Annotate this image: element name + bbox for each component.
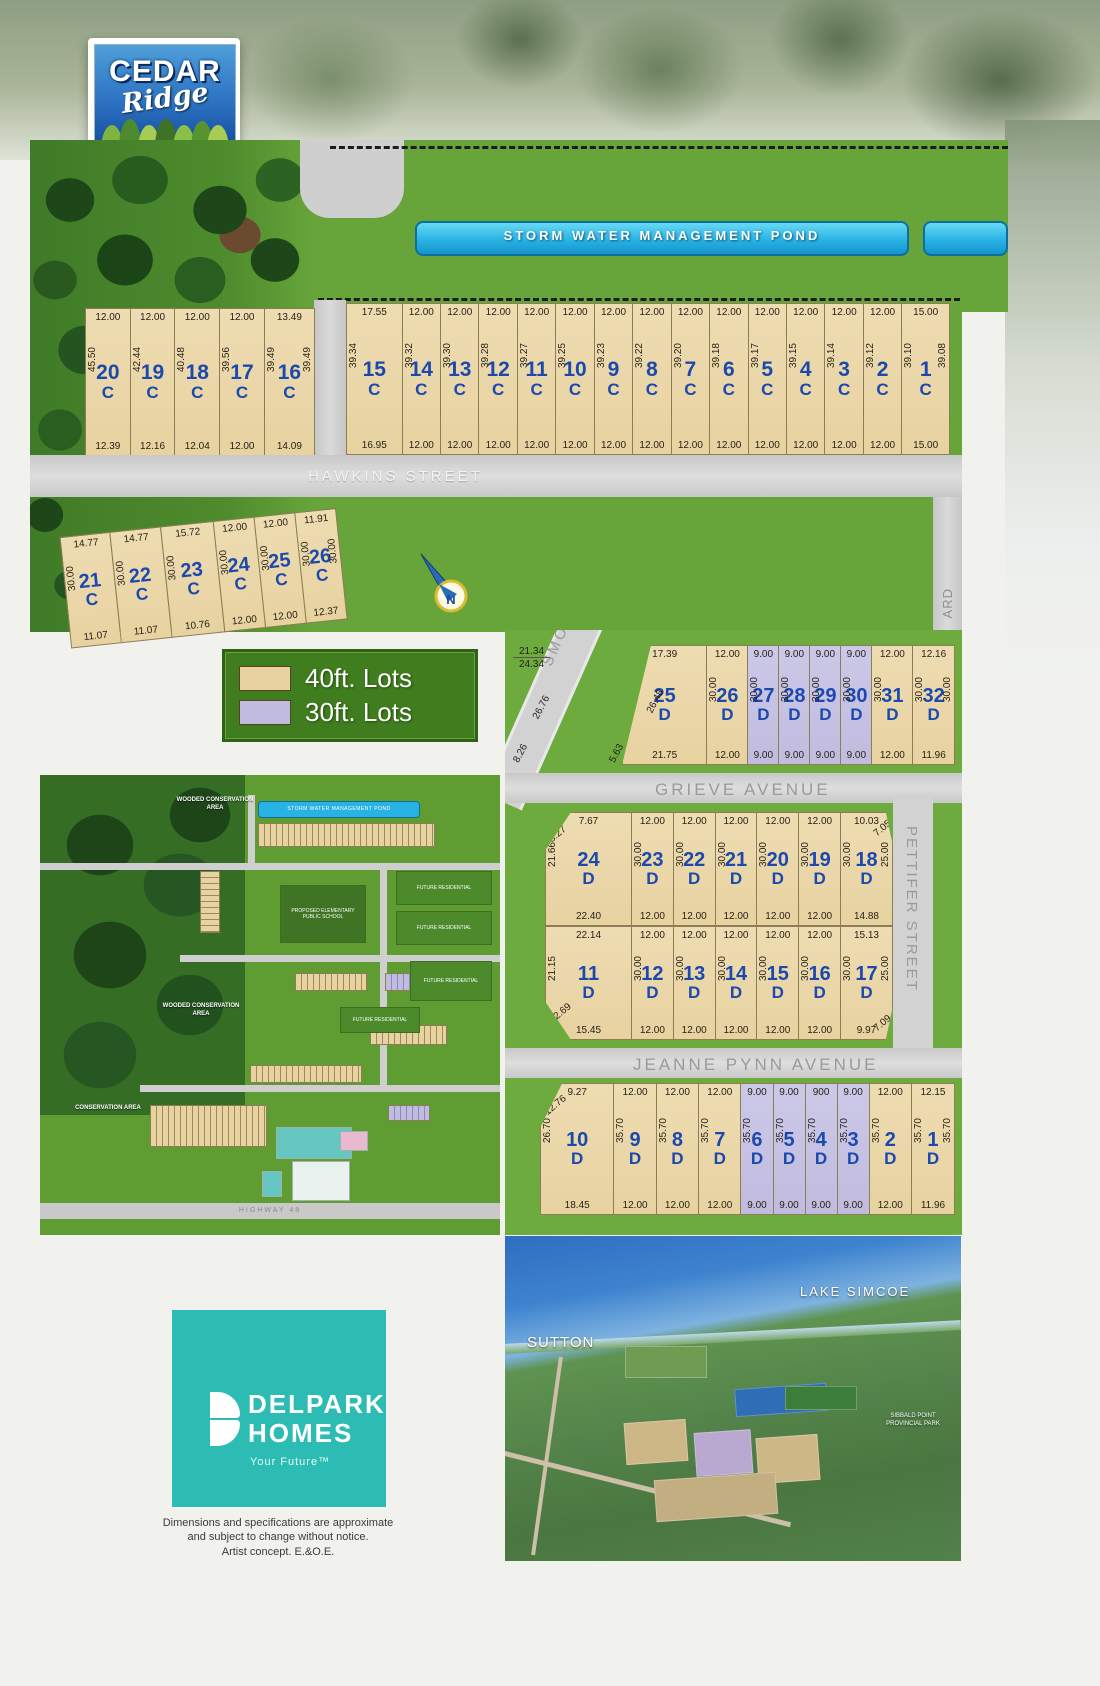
dim-bottom: 12.00 (682, 1025, 707, 1036)
lot-number: 12D (641, 965, 663, 1002)
dim-top: 14.77 (73, 537, 99, 551)
dim-side: 35.70 (871, 1118, 882, 1143)
dim-top: 12.00 (682, 930, 707, 941)
dim-top: 12.00 (807, 930, 832, 941)
dim-side: 21.66 (547, 842, 558, 867)
dim-top: 12.00 (665, 1087, 690, 1098)
dim-side: 30.00 (675, 956, 686, 981)
dim-top: 12.00 (640, 816, 665, 827)
dim-side: 35.70 (615, 1118, 626, 1143)
dim-side: 39.56 (221, 347, 232, 372)
dim-side: 35.70 (775, 1118, 786, 1143)
dim-bottom: 9.00 (847, 750, 866, 761)
lot-4D: 90035.704D9.00 (806, 1083, 838, 1215)
lot-24D: 7.678.2721.6624D22.40 (545, 812, 632, 926)
dim-top: 12.16 (921, 649, 946, 660)
lot-15D: 12.0030.0015D12.00 (757, 926, 799, 1040)
dim-top: 9.00 (779, 1087, 798, 1098)
lot-4C: 12.0039.154C12.00 (787, 303, 825, 455)
minimap-lot-strip (150, 1105, 267, 1147)
minimap-future-residential-2: FUTURE RESIDENTIAL (396, 911, 492, 945)
minimap-building (292, 1161, 350, 1201)
dim-top: 9.00 (747, 1087, 766, 1098)
lot-number: 17D (855, 965, 877, 1002)
dim-bottom: 18.45 (565, 1200, 590, 1211)
lot-number: 22C (128, 565, 154, 604)
lot-number: 7D (714, 1131, 726, 1168)
dim-bottom: 12.39 (95, 441, 120, 452)
lot-27D: 9.0030.0027D9.00 (748, 645, 779, 765)
dim-top: 12.00 (715, 649, 740, 660)
lots-25d-32d: 17.3926.4825D21.7512.0030.0026D12.009.00… (622, 645, 955, 765)
lots-1c-15c: 17.5539.3415C16.9512.0039.3214C12.0012.0… (346, 303, 950, 455)
dim-side: 35.70 (742, 1118, 753, 1143)
dim-bottom: 12.00 (447, 440, 472, 451)
delpark-name: DELPARK HOMES (248, 1390, 386, 1447)
dim-top: 12.00 (140, 312, 165, 323)
dim-top: 9.00 (785, 649, 804, 660)
dim-top: 11.91 (304, 513, 329, 526)
dim-side: 39.20 (673, 343, 684, 368)
dim-bottom: 12.00 (665, 1200, 690, 1211)
dim-top: 7.67 (579, 816, 598, 827)
dim-side: 30.00 (749, 677, 760, 702)
dim-bottom: 12.00 (563, 440, 588, 451)
minimap-lot-strip (295, 973, 367, 991)
lot-number: 19D (808, 851, 830, 888)
dim-bottom: 12.16 (140, 441, 165, 452)
dim-bottom: 9.00 (816, 750, 835, 761)
lot-12C: 12.0039.2812C12.00 (479, 303, 517, 455)
dim-side: 30.00 (758, 842, 769, 867)
dim-side: 39.22 (634, 343, 645, 368)
dim-bottom: 12.00 (765, 911, 790, 922)
lot-5D: 9.0035.705D9.00 (774, 1083, 806, 1215)
minimap-conservation-label: CONSERVATION AREA (68, 1105, 148, 1113)
dim-side-right: 39.49 (302, 347, 313, 372)
delpark-d-icon (210, 1392, 240, 1446)
lot-number: 26D (716, 687, 738, 724)
dim-bottom: 12.00 (707, 1200, 732, 1211)
dim-side: 39.25 (557, 343, 568, 368)
dim-bottom: 12.00 (716, 440, 741, 451)
pettifer-street-label: PETTIFER STREET (903, 826, 920, 992)
disclaimer-line3: Artist concept. E.&O.E. (128, 1545, 428, 1559)
dim-bottom: 12.00 (623, 1200, 648, 1211)
lot-19C: 12.0042.4419C12.16 (131, 308, 176, 456)
dim-top: 12.00 (185, 312, 210, 323)
lot-1C: 15.0039.1039.081C15.00 (902, 303, 950, 455)
minimap-lot-strip-30ft (388, 1105, 430, 1121)
lot-13D: 12.0030.0013D12.00 (674, 926, 716, 1040)
minimap-lot-strip (258, 823, 435, 847)
dim-top: 9.00 (843, 1087, 862, 1098)
dim-top: 9.00 (847, 649, 866, 660)
lot-number: 15D (767, 965, 789, 1002)
lot-number: 16C (278, 363, 301, 402)
dim-side: 39.10 (903, 343, 914, 368)
dim-top: 12.00 (229, 312, 254, 323)
lot-31D: 12.0030.0031D12.00 (872, 645, 913, 765)
dim-bottom: 15.00 (913, 440, 938, 451)
boundary-dashed-line (318, 298, 960, 301)
lot-13C: 12.0039.3013C12.00 (441, 303, 479, 455)
dim-top: 17.55 (362, 307, 387, 318)
hawkins-street-road (30, 455, 962, 497)
boundary-dashed-line-top (330, 146, 1008, 149)
lot-number: 19C (141, 363, 164, 402)
dim-side: 30.00 (717, 956, 728, 981)
dim-top: 12.00 (95, 312, 120, 323)
lot-number: 24C (227, 555, 253, 594)
dim-side: 39.18 (711, 343, 722, 368)
dim-bottom: 12.00 (755, 440, 780, 451)
lot-2C: 12.0039.122C12.00 (864, 303, 902, 455)
lot-22D: 12.0030.0022D12.00 (674, 812, 716, 926)
lot-16D: 12.0030.0016D12.00 (799, 926, 841, 1040)
minimap-woods (40, 775, 245, 1115)
lot-9C: 12.0039.239C12.00 (595, 303, 633, 455)
dim-side: 30.00 (800, 956, 811, 981)
boulevard-partial-label: ARD (940, 588, 955, 618)
storm-water-pond-east (923, 221, 1008, 256)
dim-top: 12.00 (765, 930, 790, 941)
dim-bottom: 12.00 (870, 440, 895, 451)
delpark-tagline: Your Future™ (250, 1456, 330, 1468)
delpark-homes-logo: DELPARK HOMES Your Future™ (172, 1310, 386, 1507)
lot-number: 11D (578, 965, 599, 1002)
lot-2D: 12.0035.702D12.00 (870, 1083, 912, 1215)
dim-bottom: 12.00 (486, 440, 511, 451)
lot-number: 1C (920, 360, 932, 399)
pond-label: STORM WATER MANAGEMENT POND (415, 228, 909, 243)
dim-diagonal: 12.76 (542, 1093, 568, 1118)
dim-bottom: 9.00 (754, 750, 773, 761)
lot-11D: 22.1412.6921.1511D15.45 (545, 926, 632, 1040)
lot-number: 22D (683, 851, 705, 888)
dim-bottom: 16.95 (362, 440, 387, 451)
dim-bottom: 21.75 (652, 750, 677, 761)
dim-side: 39.12 (865, 343, 876, 368)
dim-bottom: 11.96 (921, 1200, 945, 1211)
lot-number: 9D (629, 1131, 641, 1168)
dim-bottom: 14.09 (277, 441, 302, 452)
dim-top: 12.00 (678, 307, 703, 318)
dim-top: 15.00 (913, 307, 938, 318)
lot-number: 21D (725, 851, 747, 888)
lot-3C: 12.0039.143C12.00 (825, 303, 863, 455)
dim-bottom: 15.45 (576, 1025, 601, 1036)
dim-bottom: 12.00 (793, 440, 818, 451)
entrance-road (300, 140, 404, 218)
lot-number: 3C (838, 360, 850, 399)
lot-8D: 12.0035.708D12.00 (657, 1083, 699, 1215)
lot-19D: 12.0030.0019D12.00 (799, 812, 841, 926)
brochure-page: { "logo": {"top": "CEDAR", "script": "Ri… (0, 0, 1100, 1686)
lot-number: 7C (684, 360, 696, 399)
dim-bottom: 14.88 (854, 911, 879, 922)
dim-top: 12.00 (765, 816, 790, 827)
lot-16C: 13.4939.4939.4916C14.09 (265, 308, 315, 456)
aerial-development-plot (694, 1429, 754, 1477)
dim-side: 30.00 (259, 545, 273, 571)
dim-top: 12.15 (920, 1087, 945, 1098)
lot-17C: 12.0039.5617C12.00 (220, 308, 265, 456)
dim-top: 14.77 (123, 532, 149, 546)
dim-bottom: 12.00 (640, 1025, 665, 1036)
lot-7C: 12.0039.207C12.00 (672, 303, 710, 455)
lot-32D: 12.1630.0030.0032D11.96 (913, 645, 955, 765)
lot-number: 23C (180, 560, 206, 599)
dim-side: 30.00 (780, 677, 791, 702)
dim-top: 12.00 (878, 1087, 903, 1098)
dim-top: 12.00 (807, 816, 832, 827)
dim-side: 30.00 (115, 560, 129, 586)
sutton-label: SUTTON (527, 1334, 594, 1351)
dim-bottom: 12.37 (313, 605, 339, 619)
minimap-future-residential-4: FUTURE RESIDENTIAL (340, 1007, 420, 1033)
lot-number: 14D (725, 965, 747, 1002)
dim-bottom: 11.07 (133, 624, 158, 637)
lot-8C: 12.0039.228C12.00 (633, 303, 671, 455)
minimap-road (40, 863, 500, 870)
dim-top: 10.03 (854, 816, 879, 827)
lot-5C: 12.0039.175C12.00 (749, 303, 787, 455)
dim-top: 12.00 (639, 307, 664, 318)
dim-side: 30.00 (842, 677, 853, 702)
dim-top: 12.00 (447, 307, 472, 318)
dim-bottom: 12.00 (229, 441, 254, 452)
lot-18D: 10.037.0530.0025.0018D14.88 (841, 812, 893, 926)
lot-number: 20C (96, 363, 119, 402)
aerial-field (785, 1386, 857, 1410)
dim-side-right: 35.70 (942, 1118, 953, 1143)
dim-top: 9.00 (754, 649, 773, 660)
forest-background-right (1005, 120, 1100, 680)
dim-side: 30.00 (218, 549, 232, 575)
lot-number: 5C (761, 360, 773, 399)
lot-number: 9C (607, 360, 619, 399)
dim-top: 12.00 (682, 816, 707, 827)
dim-top: 15.13 (854, 930, 879, 941)
lot-1D: 12.1535.7035.701D11.96 (912, 1083, 955, 1215)
dim-side: 35.70 (658, 1118, 669, 1143)
dim-top: 12.00 (563, 307, 588, 318)
lot-9D: 12.0035.709D12.00 (614, 1083, 656, 1215)
lot-number: 31D (881, 687, 903, 724)
dim-side: 45.50 (87, 347, 98, 372)
lot-number: 1D (927, 1131, 939, 1168)
dim-bottom: 12.00 (723, 911, 748, 922)
dim-bottom: 12.00 (723, 1025, 748, 1036)
dim-bottom: 22.40 (576, 911, 601, 922)
delpark-line1: DELPARK (248, 1390, 386, 1419)
dim-side: 39.28 (480, 343, 491, 368)
dim-top: 17.39 (652, 649, 677, 660)
lot-number: 2C (876, 360, 888, 399)
dim-side-right: 39.08 (937, 343, 948, 368)
dim-side: 30.00 (708, 677, 719, 702)
dim-side: 35.70 (839, 1118, 850, 1143)
dim-side: 30.00 (800, 842, 811, 867)
north-letter: N (446, 592, 455, 607)
dim-bottom: 12.00 (678, 440, 703, 451)
dim-bottom: 9.97 (857, 1025, 876, 1036)
lot-number: 24D (577, 851, 599, 888)
dim-side: 35.70 (807, 1118, 818, 1143)
dim-bottom: 9.00 (779, 1200, 798, 1211)
dim-bottom: 12.00 (409, 440, 434, 451)
aerial-development-plot (654, 1472, 779, 1522)
dim-bottom: 12.00 (682, 911, 707, 922)
dim-top: 9.27 (567, 1087, 586, 1098)
dim-bottom: 12.00 (765, 1025, 790, 1036)
dim-side: 30.00 (165, 555, 179, 581)
dim-side: 30.00 (842, 956, 853, 981)
dim-side: 30.00 (633, 956, 644, 981)
dim-top: 12.00 (707, 1087, 732, 1098)
jeanne-pynn-avenue-label: JEANNE PYNN AVENUE (633, 1055, 878, 1075)
lot-number: 17C (230, 363, 253, 402)
lot-number: 25C (267, 551, 293, 590)
dim-side: 30.00 (300, 540, 314, 566)
dim-side: 30.00 (811, 677, 822, 702)
dim-top: 12.00 (755, 307, 780, 318)
dim-bottom: 12.00 (639, 440, 664, 451)
dim-top: 12.00 (263, 517, 289, 531)
minimap-road (140, 1085, 500, 1092)
side-road (314, 300, 346, 457)
lot-number: 23D (641, 851, 663, 888)
lot-number: 18D (855, 851, 877, 888)
dim-side: 30.00 (873, 677, 884, 702)
dim-bottom: 12.00 (880, 750, 905, 761)
dim-top: 12.00 (409, 307, 434, 318)
legend-40ft-row: 40ft. Lots (239, 663, 461, 694)
minimap-building (262, 1171, 282, 1197)
dim-top: 900 (813, 1087, 830, 1098)
lot-number: 15C (363, 360, 386, 399)
lake-simcoe-label: LAKE SIMCOE (800, 1284, 910, 1299)
dim-side: 26.70 (542, 1118, 553, 1143)
dim-side: 30.00 (65, 565, 79, 591)
lot-10D: 9.2712.7626.7010D18.45 (540, 1083, 614, 1215)
lot-6C: 12.0039.186C12.00 (710, 303, 748, 455)
disclaimer-text: Dimensions and specifications are approx… (128, 1516, 428, 1559)
aerial-development-plot (624, 1419, 689, 1465)
lot-20D: 12.0030.0020D12.00 (757, 812, 799, 926)
dim-side: 39.14 (826, 343, 837, 368)
dim-side: 30.00 (758, 956, 769, 981)
dim-side: 39.27 (519, 343, 530, 368)
dim-top: 12.00 (880, 649, 905, 660)
lot-14C: 12.0039.3214C12.00 (403, 303, 441, 455)
dim-top: 12.00 (601, 307, 626, 318)
minimap-lot-strip (200, 871, 220, 933)
lot-number: 8C (646, 360, 658, 399)
lot-6D: 9.0035.706D9.00 (741, 1083, 773, 1215)
dim-top: 12.00 (723, 930, 748, 941)
lot-23D: 12.0030.0023D12.00 (632, 812, 674, 926)
lot-number: 16D (808, 965, 830, 1002)
dim-bottom: 11.07 (83, 630, 108, 643)
dim-bottom: 10.76 (184, 619, 210, 633)
dim-bottom: 9.00 (843, 1200, 862, 1211)
legend-40ft-swatch (239, 666, 291, 691)
minimap-future-residential-1: FUTURE RESIDENTIAL (396, 871, 492, 905)
lot-3D: 9.0035.703D9.00 (838, 1083, 870, 1215)
dim-25d-corner-b: 24.34 (513, 659, 550, 670)
north-compass: N (415, 552, 479, 616)
dim-side: 35.70 (913, 1118, 924, 1143)
lot-17D: 15.137.0930.0025.0017D9.97 (841, 926, 893, 1040)
lot-11C: 12.0039.2711C12.00 (518, 303, 556, 455)
sibbald-park-label: SIBBALD POINT PROVINCIAL PARK (883, 1412, 943, 1429)
lot-number: 21C (78, 571, 104, 610)
dim-bottom: 12.04 (185, 441, 210, 452)
dim-side: 39.32 (404, 343, 415, 368)
dim-top: 12.00 (623, 1087, 648, 1098)
minimap-highway48: HIGHWAY 48 (40, 1203, 500, 1219)
aerial-photo: LAKE SIMCOE SUTTON SIBBALD POINT PROVINC… (505, 1236, 961, 1561)
disclaimer-line1: Dimensions and specifications are approx… (128, 1516, 428, 1530)
lot-number: 2D (884, 1131, 896, 1168)
dim-top: 13.49 (277, 312, 302, 323)
dim-top: 12.00 (793, 307, 818, 318)
dim-bottom: 12.00 (807, 911, 832, 922)
lot-15C: 17.5539.3415C16.95 (346, 303, 403, 455)
dim-side-right: 25.00 (880, 956, 891, 981)
overview-siteplan: STORM WATER MANAGEMENT POND FUTURE RESID… (40, 775, 500, 1235)
dim-top: 12.00 (723, 816, 748, 827)
minimap-pond: STORM WATER MANAGEMENT POND (258, 801, 420, 818)
lot-20C: 12.0045.5020C12.39 (85, 308, 131, 456)
dim-side: 39.49 (266, 347, 277, 372)
dim-side: 30.00 (914, 677, 925, 702)
dim-side: 39.34 (348, 343, 359, 368)
dim-side: 39.23 (596, 343, 607, 368)
dim-side-right: 30.00 (326, 538, 340, 564)
lot-28D: 9.0030.0028D9.00 (779, 645, 810, 765)
lot-25D: 17.3926.4825D21.75 (622, 645, 707, 765)
lot-26D: 12.0030.0026D12.00 (707, 645, 748, 765)
lot-number: 6C (723, 360, 735, 399)
dim-bottom: 9.00 (785, 750, 804, 761)
dim-top: 12.00 (832, 307, 857, 318)
dim-top: 12.00 (486, 307, 511, 318)
dim-side: 30.00 (717, 842, 728, 867)
dim-top: 15.72 (175, 526, 201, 540)
lot-29D: 9.0030.0029D9.00 (810, 645, 841, 765)
minimap-school: PROPOSED ELEMENTARY PUBLIC SCHOOL (280, 885, 366, 943)
aerial-road (531, 1357, 563, 1556)
dim-bottom: 12.00 (832, 440, 857, 451)
lot-21D: 12.0030.0021D12.00 (716, 812, 758, 926)
dim-bottom: 12.00 (715, 750, 740, 761)
dim-top: 12.00 (222, 521, 248, 535)
dim-side: 39.15 (788, 343, 799, 368)
dim-bottom: 12.00 (807, 1025, 832, 1036)
legend-40ft-label: 40ft. Lots (305, 663, 412, 694)
aerial-field (625, 1346, 707, 1378)
dim-top: 12.00 (870, 307, 895, 318)
lot-number: 4C (800, 360, 812, 399)
lot-12D: 12.0030.0012D12.00 (632, 926, 674, 1040)
lot-10C: 12.0039.2510C12.00 (556, 303, 594, 455)
dim-side-right: 30.00 (942, 677, 953, 702)
dim-side: 35.70 (700, 1118, 711, 1143)
hawkins-street-label: HAWKINS STREET (308, 468, 483, 485)
